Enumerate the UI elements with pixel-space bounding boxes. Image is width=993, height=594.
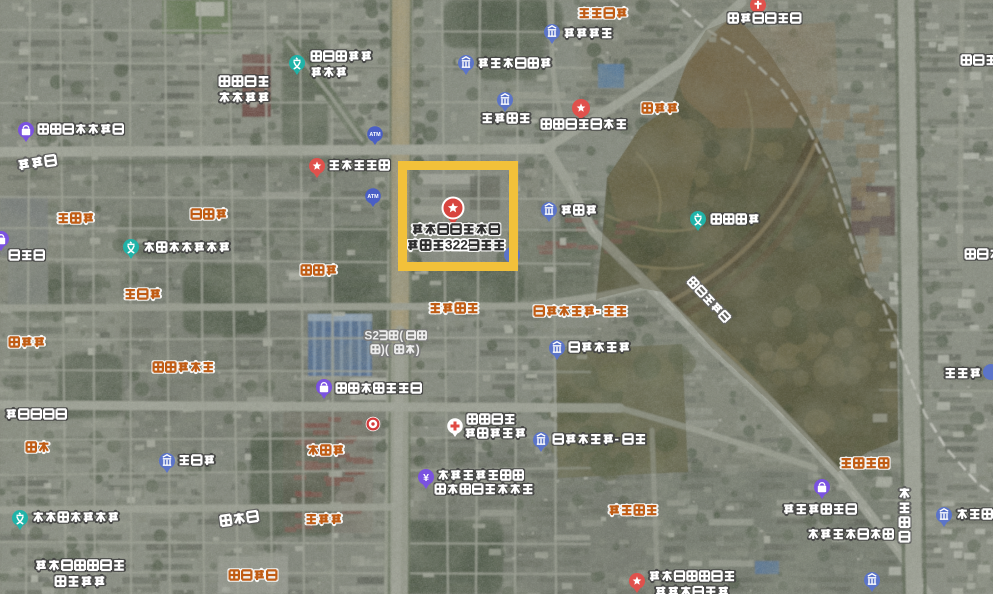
svg-text:¥: ¥ — [423, 472, 429, 484]
svg-text:ATM: ATM — [367, 194, 379, 200]
svg-text:): ) — [416, 342, 420, 356]
svg-text:(: ( — [399, 328, 403, 342]
svg-text:-: - — [615, 432, 620, 447]
svg-text:ATM: ATM — [369, 132, 381, 138]
svg-text:)(: )( — [381, 342, 389, 356]
svg-text:S2: S2 — [364, 328, 379, 342]
svg-text:322: 322 — [445, 238, 468, 253]
svg-text:-: - — [596, 304, 601, 319]
